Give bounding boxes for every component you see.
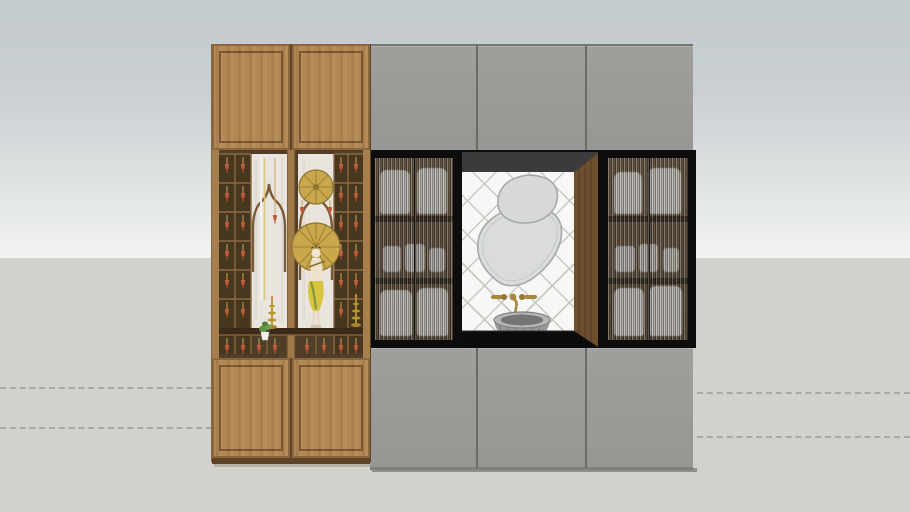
lower-door-panel-1 [370,348,476,468]
glassware-item [383,246,401,272]
brass-fan-small [299,170,333,204]
shelf-item [417,168,447,214]
door-inset-moulding [299,51,363,143]
upper-cabinet-row [370,44,693,152]
fluted-glass-cabinet-left [375,158,453,340]
3d-viewport[interactable] [0,0,910,512]
shelf-item [648,168,681,214]
lower-door-panel-3 [587,348,693,468]
glassware-item [663,248,679,272]
shelf-item [380,170,410,214]
upper-door-panel-3 [587,46,693,152]
wood-door-top-left [212,44,290,150]
wall-faucet [491,294,537,314]
pooja-plinth [212,458,370,464]
pooja-bottom-doors [212,358,370,458]
glass-door-mullion [648,158,650,340]
left-stile [212,150,219,358]
shelf-item [649,286,682,336]
sink-basin-inner [501,315,543,325]
upper-door-panel-2 [478,46,584,152]
pooja-jali-section [212,150,370,358]
shelf-item [380,290,412,336]
shrine-shelf [219,328,363,335]
door-inset-moulding [219,365,283,451]
lower-cabinet-row [370,348,693,470]
faucet-right-handle [524,295,537,299]
fluted-glass-cabinet-right [608,158,688,340]
glassware-item [615,246,635,272]
ground-guide-line [0,427,212,429]
shelf-item [614,288,644,336]
shelf-item [417,288,448,336]
glass-door-mullion [414,158,416,340]
niche-wood-side-panel [574,153,598,347]
door-inset-moulding [299,365,363,451]
lower-door-panel-2 [478,348,584,468]
right-stile [363,150,370,358]
shelf-item [614,172,642,214]
vanity-niche [458,150,602,348]
wood-door-top-right [292,44,370,150]
upper-door-panel-1 [370,46,476,152]
vanity-counter [462,331,598,348]
ground-guide-line [697,392,910,394]
door-inset-moulding [219,51,283,143]
ground-guide-line [0,387,212,389]
glassware-item [429,248,445,272]
pooja-top-doors [212,44,370,150]
wood-door-bottom-left [212,358,290,458]
pebble-mirror-small [498,175,557,223]
wood-door-bottom-right [292,358,370,458]
niche-ceiling [462,152,598,172]
ground-guide-line [697,436,910,438]
faucet-left-base [501,294,507,300]
